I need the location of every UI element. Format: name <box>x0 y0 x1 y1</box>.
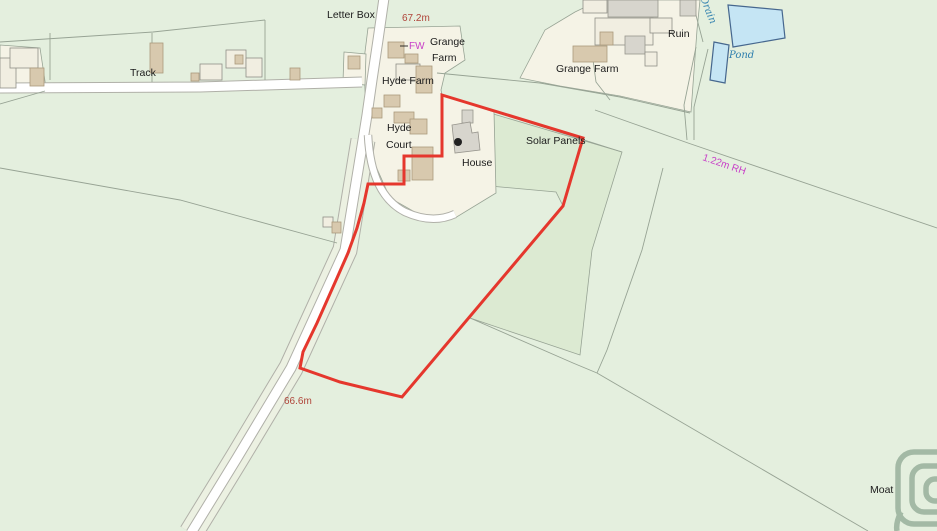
label-ruin: Ruin <box>668 28 690 40</box>
label-pond: Pond <box>728 50 754 61</box>
pond-small <box>710 42 729 83</box>
label-moat: Moat <box>870 484 893 496</box>
label-grange-farm-small-1: Grange <box>430 36 465 48</box>
label-track: Track <box>130 67 157 79</box>
label-spot-height-south: 66.6m <box>284 396 312 407</box>
map-canvas[interactable]: Letter Box 67.2m FW Grange Farm Hyde Far… <box>0 0 937 531</box>
map-background <box>0 0 937 531</box>
label-house: House <box>462 157 493 169</box>
label-solar-panels: Solar Panels <box>526 135 586 147</box>
label-hyde-court-1: Hyde <box>387 122 412 134</box>
label-letter-box: Letter Box <box>327 9 376 21</box>
label-grange-farm-small-2: Farm <box>432 52 457 64</box>
house-dot <box>454 138 462 146</box>
label-hyde-court-2: Court <box>386 139 412 151</box>
label-grange-farm: Grange Farm <box>556 63 619 75</box>
label-spot-height-north: 67.2m <box>402 13 430 24</box>
label-hyde-farm: Hyde Farm <box>382 75 434 87</box>
label-fw: FW <box>409 41 425 52</box>
os-map: Letter Box 67.2m FW Grange Farm Hyde Far… <box>0 0 937 531</box>
